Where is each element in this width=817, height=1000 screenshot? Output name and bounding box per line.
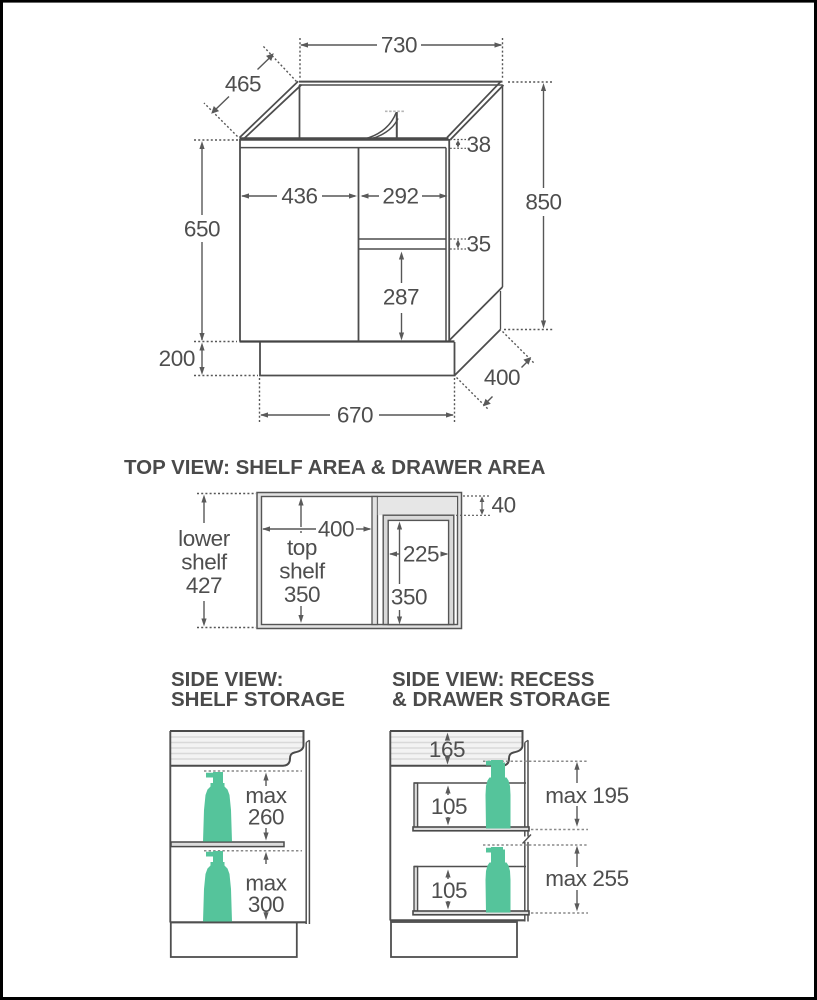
svg-text:260: 260	[248, 805, 284, 830]
svg-text:730: 730	[381, 33, 417, 58]
svg-text:287: 287	[383, 285, 419, 310]
svg-text:400: 400	[318, 517, 354, 542]
svg-text:225: 225	[403, 542, 439, 567]
svg-text:350: 350	[284, 582, 320, 607]
svg-text:max 195: max 195	[545, 783, 629, 808]
svg-text:300: 300	[248, 892, 284, 917]
svg-text:lower: lower	[178, 526, 231, 551]
svg-text:427: 427	[186, 573, 222, 598]
svg-text:465: 465	[225, 72, 261, 97]
svg-text:292: 292	[382, 184, 418, 209]
svg-text:TOP VIEW: SHELF AREA & DRAWER: TOP VIEW: SHELF AREA & DRAWER AREA	[124, 456, 546, 479]
svg-text:105: 105	[431, 794, 467, 819]
svg-text:670: 670	[337, 403, 373, 428]
svg-text:40: 40	[492, 493, 516, 518]
svg-text:35: 35	[467, 232, 491, 257]
svg-text:850: 850	[525, 190, 561, 215]
svg-text:max 255: max 255	[545, 866, 629, 891]
svg-text:SHELF STORAGE: SHELF STORAGE	[171, 688, 345, 711]
svg-text:38: 38	[467, 132, 491, 157]
svg-text:shelf: shelf	[181, 550, 228, 575]
svg-text:top: top	[287, 535, 317, 560]
svg-text:& DRAWER STORAGE: & DRAWER STORAGE	[392, 688, 610, 711]
svg-text:350: 350	[391, 585, 427, 610]
svg-text:650: 650	[184, 217, 220, 242]
svg-text:436: 436	[281, 184, 317, 209]
svg-text:shelf: shelf	[279, 559, 326, 584]
svg-text:400: 400	[484, 365, 520, 390]
svg-text:105: 105	[431, 878, 467, 903]
svg-text:165: 165	[429, 737, 465, 762]
svg-text:200: 200	[159, 346, 195, 371]
